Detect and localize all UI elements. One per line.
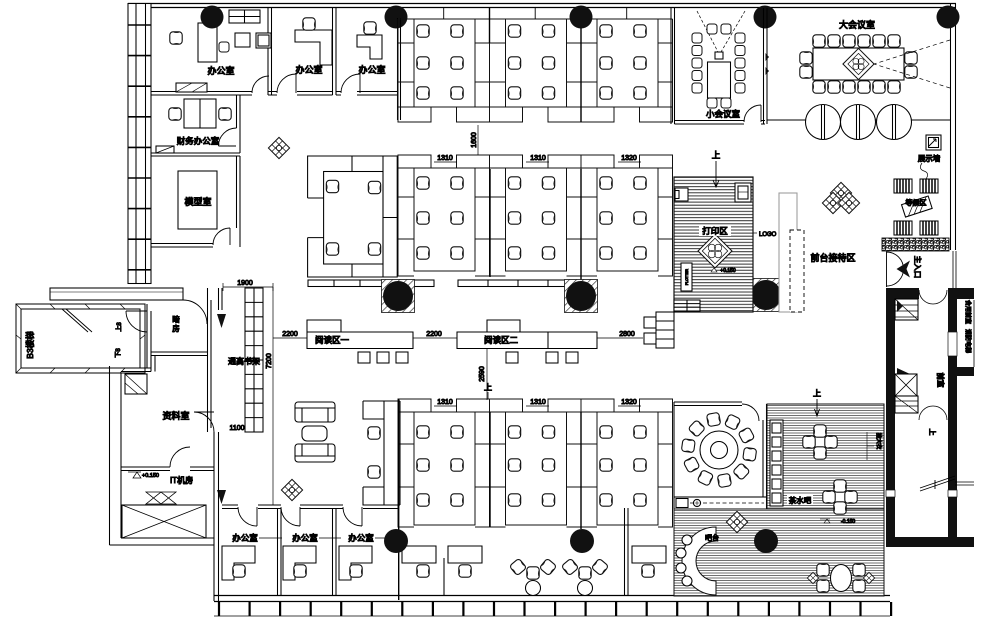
svg-text:打印区: 打印区: [702, 226, 728, 236]
svg-text:消防电梯: 消防电梯: [964, 329, 972, 353]
svg-text:2200: 2200: [282, 331, 298, 338]
svg-text:+0.150: +0.150: [142, 473, 159, 479]
svg-text:IT机房: IT机房: [170, 475, 193, 485]
svg-text:阅读区一: 阅读区一: [315, 335, 350, 345]
svg-text:上: 上: [484, 383, 492, 392]
svg-text:PLOTTER: PLOTTER: [685, 268, 689, 285]
svg-text:挂大衣: 挂大衣: [875, 433, 883, 450]
svg-text:办公室: 办公室: [292, 533, 318, 543]
svg-text:-0.150: -0.150: [841, 519, 855, 525]
svg-text:办公室: 办公室: [348, 533, 374, 543]
svg-text:1900: 1900: [237, 280, 253, 287]
svg-text:上8: 上8: [115, 322, 123, 332]
svg-text:房: 房: [172, 323, 180, 333]
svg-text:7200: 7200: [266, 353, 273, 369]
svg-text:大会议室: 大会议室: [839, 19, 875, 30]
svg-text:1100: 1100: [229, 425, 244, 432]
svg-text:茶水吧: 茶水吧: [789, 495, 812, 505]
svg-text:1310: 1310: [530, 399, 546, 406]
svg-text:+0.150: +0.150: [720, 268, 736, 274]
svg-text:2200: 2200: [426, 331, 442, 338]
svg-text:办公室: 办公室: [358, 64, 385, 75]
svg-text:1600: 1600: [471, 132, 478, 148]
svg-text:上: 上: [928, 429, 937, 436]
svg-text:吧台: 吧台: [705, 533, 719, 542]
svg-text:小会议室: 小会议室: [706, 109, 741, 119]
svg-text:上: 上: [712, 150, 721, 160]
svg-text:阅读区二: 阅读区二: [484, 335, 519, 345]
svg-text:1310: 1310: [530, 155, 546, 162]
svg-text:财务办公室: 财务办公室: [177, 136, 220, 146]
svg-text:等候区: 等候区: [906, 198, 927, 207]
svg-text:通高书架: 通高书架: [228, 356, 260, 366]
svg-text:LOGO: LOGO: [759, 232, 777, 238]
svg-text:1310: 1310: [437, 399, 453, 406]
svg-text:办公室: 办公室: [232, 533, 258, 543]
svg-text:前台接待区: 前台接待区: [810, 252, 855, 263]
svg-text:2590: 2590: [479, 366, 486, 382]
svg-text:下8: 下8: [115, 348, 122, 358]
svg-text:合用前室: 合用前室: [964, 300, 972, 324]
svg-text:资料室: 资料室: [162, 410, 189, 421]
svg-text:上: 上: [813, 389, 821, 398]
svg-text:暗: 暗: [172, 314, 180, 324]
svg-text:1320: 1320: [621, 399, 637, 406]
svg-text:前室: 前室: [936, 373, 946, 388]
svg-text:2800: 2800: [619, 331, 635, 338]
svg-text:办公室: 办公室: [207, 65, 234, 76]
svg-text:展示墙: 展示墙: [918, 153, 941, 163]
svg-text:1320: 1320: [621, 155, 637, 162]
svg-text:模型室: 模型室: [184, 196, 211, 207]
svg-text:1310: 1310: [437, 155, 453, 162]
svg-text:主入口: 主入口: [913, 256, 923, 279]
svg-text:B3楼梯: B3楼梯: [25, 331, 35, 359]
svg-text:办公室: 办公室: [295, 64, 322, 75]
